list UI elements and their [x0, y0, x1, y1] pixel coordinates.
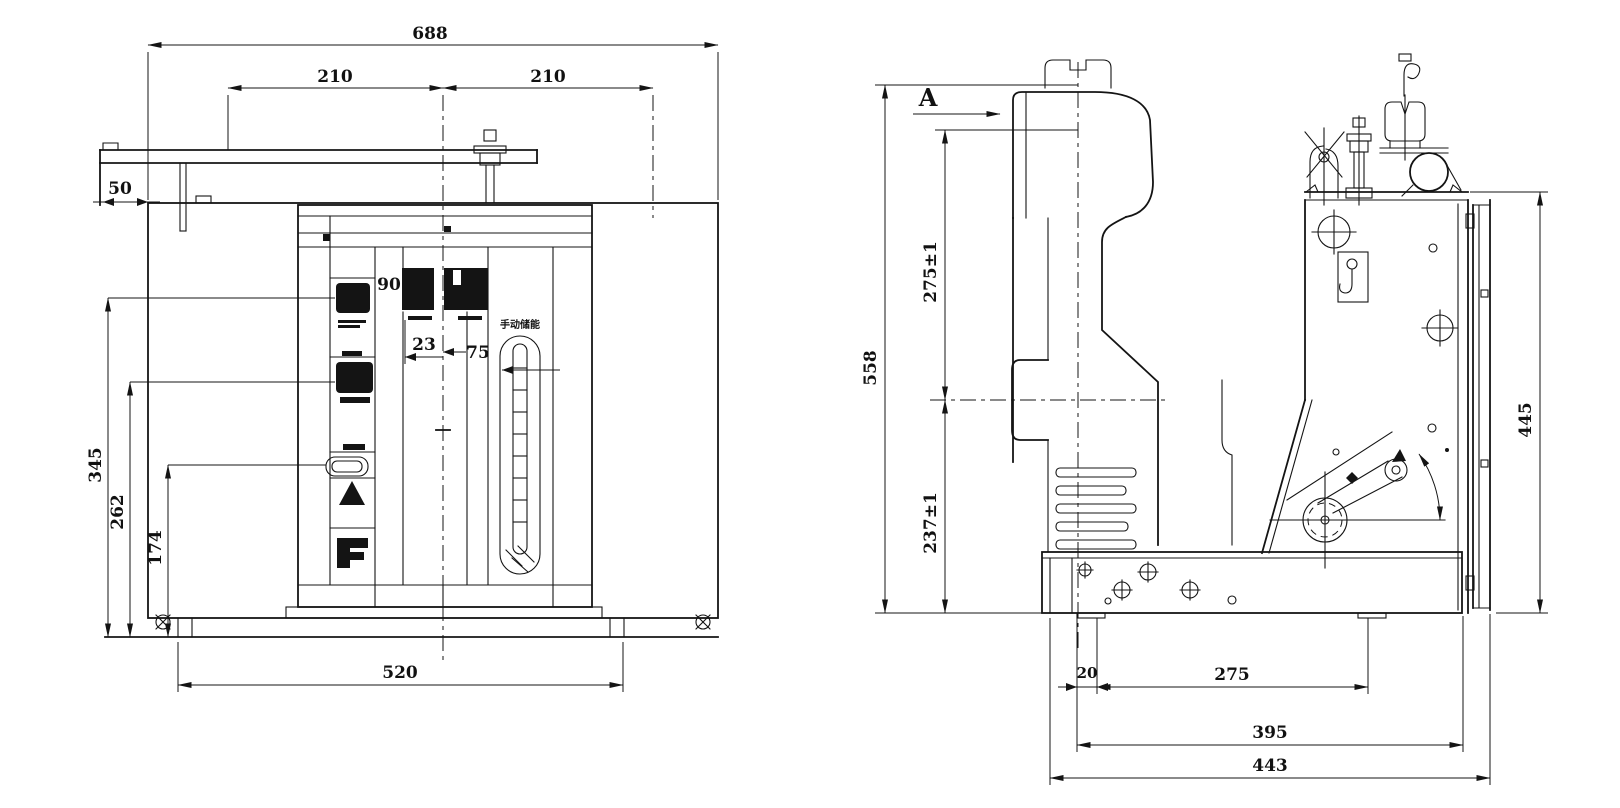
base-bolt-3 — [1138, 562, 1158, 582]
dim-688-label: 688 — [412, 24, 448, 44]
dim-275-holes: 275 — [1097, 665, 1368, 687]
indicator-button-2[interactable] — [336, 362, 373, 393]
dim-445-label: 445 — [1516, 402, 1536, 438]
side-view: A 558 275±1 237±1 — [861, 54, 1548, 785]
manual-charge-slot: 手动储能 — [500, 318, 540, 574]
dim-520-label: 520 — [382, 663, 418, 683]
anchor-bolt-right — [696, 615, 710, 629]
hook-plate — [1338, 252, 1368, 302]
dim-span-right: 210 — [443, 67, 653, 218]
label-text-line-1 — [338, 320, 366, 323]
dim-443: 443 — [1050, 756, 1490, 778]
base-bolt-1 — [1077, 562, 1093, 578]
front-view: 688 210 210 50 — [86, 24, 718, 692]
insulator-fins — [1056, 468, 1136, 549]
display-window-right — [444, 268, 488, 310]
pole-assembly — [1012, 60, 1232, 552]
dim-275t-label: 275±1 — [921, 241, 941, 303]
dim-395: 395 — [1077, 723, 1463, 745]
dim-210L-label: 210 — [317, 67, 353, 87]
dim-558-label: 558 — [861, 350, 881, 386]
drawing-canvas: 688 210 210 50 — [0, 0, 1620, 808]
dim-174-label: 174 — [146, 530, 166, 566]
slot-rungs — [513, 368, 527, 522]
dim-90-label: 90 — [377, 275, 401, 295]
clamp-block — [1380, 102, 1448, 153]
open-indicator-symbol — [337, 538, 368, 568]
panel-base-strip — [286, 607, 602, 618]
upper-bushing — [1013, 92, 1153, 218]
dim-base-width: 520 — [178, 642, 623, 692]
dim-75-label: 75 — [466, 343, 490, 363]
front-panel — [286, 205, 602, 618]
dim-443-label: 443 — [1252, 756, 1288, 776]
dim-395-label: 395 — [1252, 723, 1288, 743]
base-assembly — [1042, 200, 1490, 618]
latch-bracket — [1305, 128, 1344, 205]
dim-275-label: 275 — [1214, 665, 1250, 685]
angle-arc — [1419, 454, 1440, 520]
slot-outer-outline — [500, 336, 540, 574]
dim-50-label: 50 — [108, 179, 132, 199]
dim-23: 23 — [405, 320, 443, 364]
top-components — [1305, 54, 1461, 205]
dim-237t-label: 237±1 — [921, 492, 941, 554]
crank-mechanism — [1270, 432, 1445, 568]
dims-side-bottom: 20 275 395 443 — [1050, 614, 1490, 785]
charge-slot-label: 手动储能 — [500, 318, 540, 331]
slot-bottom-hatch — [506, 546, 534, 572]
dim-bracket-offset: 50 — [93, 179, 160, 206]
base-bolt-4 — [1180, 580, 1200, 600]
label-text-line-2 — [338, 325, 360, 328]
dim-23-label: 23 — [412, 335, 436, 355]
dim-door-height: 445 — [1470, 192, 1548, 613]
pole-rear-bracket — [1222, 380, 1232, 545]
engineering-drawing: 688 210 210 50 — [0, 0, 1620, 808]
beam-stud-bolt — [474, 130, 506, 203]
mechanism-box — [1262, 185, 1468, 613]
box-hole-top — [1312, 210, 1356, 254]
dim-20-label: 20 — [1077, 664, 1098, 682]
dim-span-left: 210 — [228, 67, 443, 150]
section-label: A — [918, 83, 938, 112]
box-hole-right — [1422, 310, 1458, 346]
rear-door-panel[interactable] — [1466, 200, 1490, 610]
hook-icon — [1340, 269, 1352, 293]
flange-ring — [1402, 153, 1461, 196]
bracket-foot — [196, 196, 211, 203]
bracket-tab — [103, 143, 118, 150]
indicator-button-1[interactable] — [336, 283, 370, 313]
base-bolt-2 — [1112, 580, 1132, 600]
indicator-column — [326, 278, 375, 568]
section-indicator: A — [913, 83, 1000, 114]
dim-345-label: 345 — [86, 447, 106, 483]
display-window-left — [402, 268, 434, 310]
dim-total-width: 688 — [148, 24, 718, 200]
dim-262-label: 262 — [108, 494, 128, 530]
box-diagonal-edge — [1262, 400, 1305, 553]
dim-210R-label: 210 — [530, 67, 566, 87]
close-indicator-triangle — [339, 481, 365, 505]
pole-right-profile — [1102, 217, 1158, 545]
